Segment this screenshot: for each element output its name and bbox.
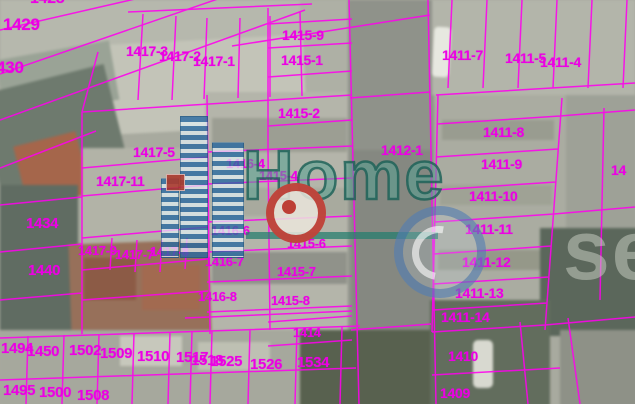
parcel-label: 14 <box>611 163 626 177</box>
parcel-label: 1500 <box>39 385 71 400</box>
parcel-label: 1526 <box>250 357 282 372</box>
parcel-label: 1416-7 <box>205 255 244 268</box>
parcel-label: 1416-8 <box>198 290 237 303</box>
parcel-label: 1415-4 <box>259 169 298 182</box>
parcel-label: 1411-13 <box>455 286 504 300</box>
parcel-label: 1502 <box>69 343 101 358</box>
parcel-label: 1411-7 <box>442 48 483 62</box>
parcel-label: 1416-6 <box>211 224 250 237</box>
parcel-label: 1417-7 <box>115 248 154 261</box>
parcel-label: 1417-1 <box>193 54 235 68</box>
parcel-label: 1430 <box>0 59 24 76</box>
parcel-label: 1414 <box>293 326 321 339</box>
parcel-label: 1415-6 <box>287 237 326 250</box>
parcel-label: 1534 <box>297 355 329 370</box>
parcel-label: 1415-2 <box>278 106 320 120</box>
parcel-label: 1410 <box>448 349 478 363</box>
parcel-label: 1411-10 <box>469 189 518 203</box>
parcel-label: 1509 <box>100 346 132 361</box>
parcel-labels-layer: 1428142914301417-31417-21417-11415-91415… <box>0 0 635 404</box>
parcel-label: 1415-8 <box>271 294 310 307</box>
parcel-label: 1417-8 <box>150 245 189 258</box>
parcel-label: 1411-9 <box>481 157 522 171</box>
parcel-label: 1417-5 <box>133 145 175 159</box>
parcel-label: 1525 <box>210 354 242 369</box>
parcel-label: 1411-14 <box>441 310 490 324</box>
parcel-label: 1428 <box>30 0 64 7</box>
parcel-label: 1411-12 <box>462 255 511 269</box>
parcel-label: 1434 <box>26 216 58 231</box>
parcel-label: 1417-11 <box>96 174 145 188</box>
parcel-label: 1415-1 <box>281 53 323 67</box>
parcel-label: 1411-4 <box>540 55 581 69</box>
parcel-label: 1450 <box>27 344 59 359</box>
parcel-label: 1429 <box>3 16 40 33</box>
parcel-label: 1409 <box>440 386 470 400</box>
parcel-label: 1495 <box>3 383 35 398</box>
parcel-label: 1510 <box>137 349 169 364</box>
parcel-label: 1412-1 <box>381 143 423 157</box>
parcel-label: 1508 <box>77 388 109 403</box>
parcel-label: 1417-9 <box>78 244 117 257</box>
map-canvas[interactable]: 1428142914301417-31417-21417-11415-91415… <box>0 0 635 404</box>
parcel-label: 1415-9 <box>282 28 324 42</box>
parcel-label: 1411-11 <box>465 222 513 236</box>
parcel-label: 1440 <box>28 263 60 278</box>
parcel-label: 1411-8 <box>483 125 524 139</box>
parcel-label: 1415-7 <box>277 265 316 278</box>
